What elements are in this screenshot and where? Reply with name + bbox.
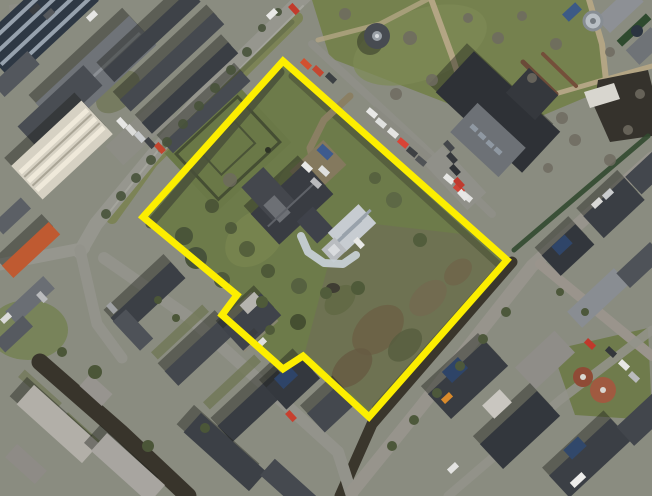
park-tree — [463, 13, 473, 23]
street-tree — [478, 334, 488, 344]
bush — [291, 278, 307, 294]
street-tree — [200, 423, 210, 433]
street-tree — [226, 65, 236, 75]
fountain-center — [590, 18, 596, 24]
street-tree — [142, 440, 154, 452]
street-tree — [581, 308, 589, 316]
street-tree — [501, 307, 511, 317]
bush — [256, 296, 268, 308]
street-tree — [194, 101, 204, 111]
street-tree — [409, 415, 419, 425]
park-tree — [492, 32, 504, 44]
street-tree — [146, 155, 156, 165]
play-equipment — [600, 387, 606, 393]
park-tree — [623, 125, 633, 135]
street-tree — [258, 24, 266, 32]
bush — [320, 287, 332, 299]
park-tree — [517, 11, 527, 21]
tree-bare — [223, 173, 237, 187]
street-tree — [101, 209, 111, 219]
bush — [290, 314, 306, 330]
street-tree — [154, 296, 162, 304]
bush — [239, 241, 255, 257]
garden-feature — [265, 147, 271, 153]
street-tree — [455, 361, 465, 371]
bush — [369, 172, 381, 184]
street-tree — [162, 137, 172, 147]
park-tree — [390, 88, 402, 100]
street-tree — [242, 47, 252, 57]
gazebo-dot — [375, 34, 379, 38]
park-tree — [426, 74, 438, 86]
park-tree — [527, 73, 537, 83]
tree — [413, 233, 427, 247]
park-tree — [550, 38, 562, 50]
play-equipment — [580, 374, 586, 380]
park-tree — [556, 112, 568, 124]
park-tree — [339, 8, 351, 20]
aerial-photo — [0, 0, 652, 496]
park-tree — [569, 134, 581, 146]
street-tree — [88, 365, 102, 379]
street-tree — [210, 83, 220, 93]
street-tree — [556, 288, 564, 296]
park-tree — [635, 89, 645, 99]
street-tree — [387, 441, 397, 451]
park-tree — [543, 163, 553, 173]
bush — [205, 199, 219, 213]
street-tree — [172, 314, 180, 322]
bush — [261, 264, 275, 278]
bush — [265, 325, 275, 335]
tree — [386, 192, 402, 208]
street-tree — [178, 119, 188, 129]
pool — [631, 25, 643, 37]
park-tree — [604, 154, 616, 166]
street-tree — [116, 191, 126, 201]
bush — [351, 281, 365, 295]
bush — [225, 222, 237, 234]
park-tree — [605, 47, 615, 57]
street-tree — [57, 347, 67, 357]
street-tree — [432, 388, 442, 398]
aerial-scene — [0, 0, 652, 496]
street-tree — [131, 173, 141, 183]
park-tree — [403, 31, 417, 45]
